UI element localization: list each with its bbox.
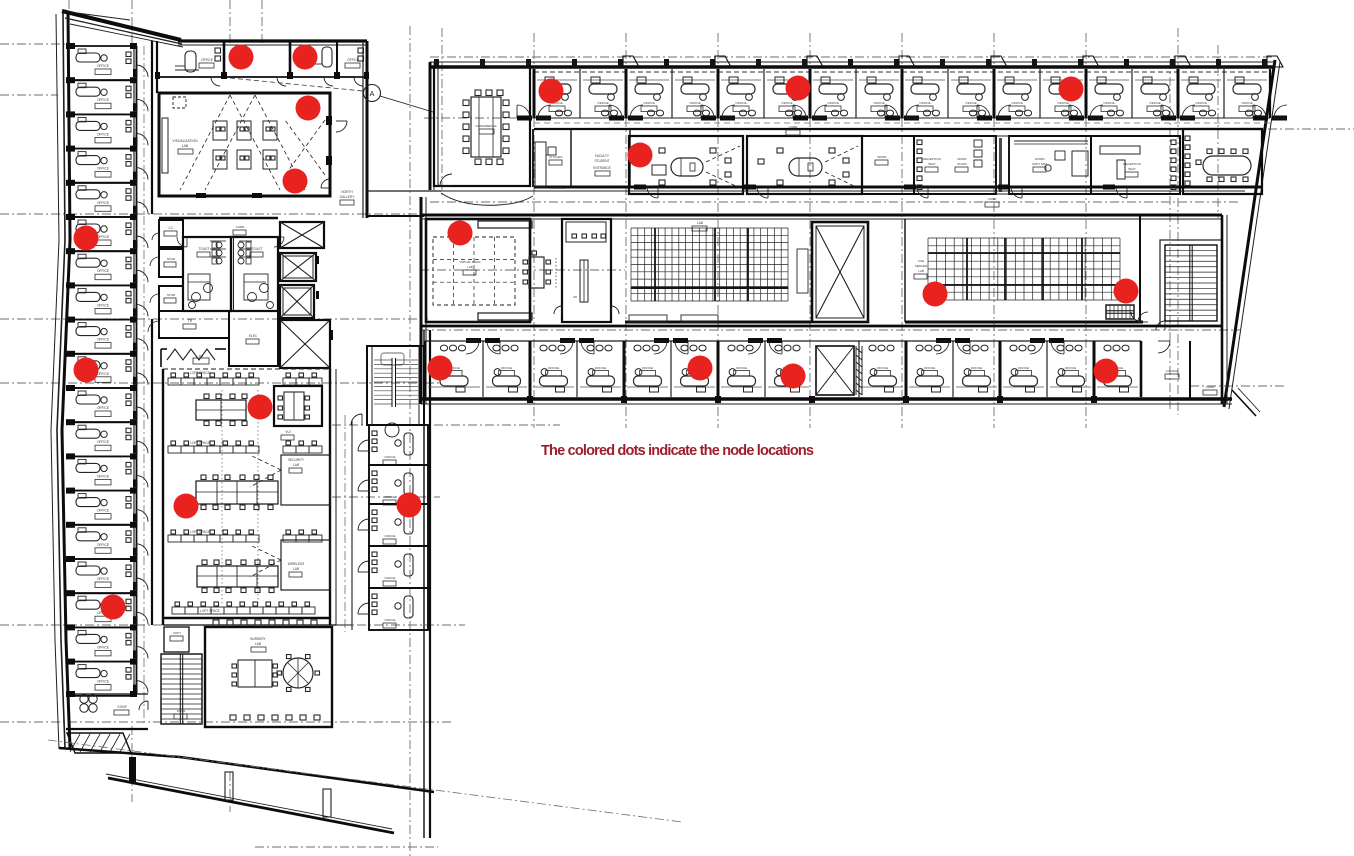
svg-text:OFFICE: OFFICE — [385, 618, 396, 622]
svg-text:SERVER: SERVER — [915, 264, 928, 268]
svg-text:LAB: LAB — [467, 265, 472, 269]
svg-text:VUI: VUI — [285, 430, 290, 434]
svg-text:OFFICE: OFFICE — [97, 645, 110, 649]
svg-text:LOUNGE: LOUNGE — [1166, 369, 1179, 373]
svg-text:OFFICE: OFFICE — [689, 101, 700, 105]
svg-text:TR: TR — [188, 319, 193, 323]
svg-text:OFFICE: OFFICE — [385, 495, 396, 499]
svg-text:LAB: LAB — [918, 269, 924, 273]
svg-text:OFFICE: OFFICE — [548, 366, 559, 370]
svg-text:KITCHEN: KITCHEN — [549, 155, 562, 159]
svg-text:OFFICE: OFFICE — [1195, 101, 1206, 105]
svg-text:ELEC: ELEC — [249, 334, 258, 338]
svg-text:WORK: WORK — [957, 157, 966, 161]
svg-text:OFFICE: OFFICE — [501, 366, 512, 370]
svg-text:FACULTY: FACULTY — [595, 154, 610, 158]
svg-text:OFFICE: OFFICE — [97, 132, 110, 136]
svg-text:OFFICE: OFFICE — [97, 577, 110, 581]
svg-text:LAB: LAB — [293, 567, 299, 571]
svg-text:BURSERY: BURSERY — [250, 637, 266, 641]
svg-text:OFFICE: OFFICE — [201, 58, 213, 62]
svg-text:COPY MAIL: COPY MAIL — [1032, 162, 1049, 166]
svg-text:DN: DN — [199, 354, 203, 358]
svg-text:CSE: CSE — [918, 259, 924, 263]
svg-text:OFFICE: OFFICE — [97, 235, 110, 239]
svg-text:STUDENT: STUDENT — [594, 159, 609, 163]
svg-text:RECEPTION: RECEPTION — [923, 157, 941, 161]
svg-text:OFFICE: OFFICE — [97, 167, 110, 171]
svg-text:OFFICE: OFFICE — [924, 366, 935, 370]
svg-text:OFFICE: OFFICE — [736, 366, 747, 370]
svg-text:TOILET: TOILET — [251, 247, 262, 251]
svg-text:OFFICE: OFFICE — [642, 366, 653, 370]
svg-text:OFFICE: OFFICE — [97, 338, 110, 342]
svg-text:WAIT: WAIT — [928, 162, 936, 166]
svg-text:WORK/: WORK/ — [1035, 157, 1045, 161]
svg-text:OFFICE: OFFICE — [97, 680, 110, 684]
svg-text:The colored dots indicate the: The colored dots indicate the node locat… — [541, 443, 814, 459]
svg-text:LAB: LAB — [697, 221, 703, 225]
svg-text:OFFICE: OFFICE — [1149, 101, 1160, 105]
svg-text:VIRTUAL MEDIA: VIRTUAL MEDIA — [459, 260, 480, 264]
svg-text:LAB: LAB — [182, 144, 189, 148]
svg-text:NORTH: NORTH — [341, 190, 353, 194]
svg-text:TOILET: TOILET — [198, 247, 209, 251]
svg-text:OFFICE: OFFICE — [1011, 101, 1022, 105]
svg-text:LAB: LAB — [293, 463, 299, 467]
svg-text:STORAGE: STORAGE — [551, 186, 565, 190]
svg-text:A: A — [370, 91, 375, 98]
svg-text:STOR: STOR — [167, 293, 176, 297]
svg-text:STOR: STOR — [167, 257, 176, 261]
svg-text:OFFICE: OFFICE — [1018, 366, 1029, 370]
svg-text:OFFICE: OFFICE — [97, 98, 110, 102]
svg-text:ENTRANCE: ENTRANCE — [593, 166, 611, 170]
svg-text:UP: UP — [573, 295, 577, 299]
svg-text:OFFICE: OFFICE — [97, 406, 110, 410]
svg-text:SECURITY: SECURITY — [288, 458, 305, 462]
svg-text:OFFICE: OFFICE — [877, 366, 888, 370]
svg-text:OFFICE: OFFICE — [597, 101, 608, 105]
svg-text:GALLERY: GALLERY — [340, 195, 356, 199]
svg-text:OFFICE: OFFICE — [385, 534, 396, 538]
svg-text:CORR: CORR — [988, 197, 998, 201]
svg-text:OFFICE: OFFICE — [735, 101, 746, 105]
svg-text:WORK: WORK — [877, 155, 886, 159]
svg-text:OFFICE: OFFICE — [97, 303, 110, 307]
svg-text:OFFICE: OFFICE — [385, 455, 396, 459]
svg-text:J.C.: J.C. — [168, 226, 174, 230]
svg-text:OFFICE: OFFICE — [1065, 366, 1076, 370]
svg-text:STAIR: STAIR — [177, 709, 186, 713]
svg-text:OFFICE: OFFICE — [97, 474, 110, 478]
svg-text:ROOM: ROOM — [957, 162, 967, 166]
svg-text:LOFT SPACE: LOFT SPACE — [190, 530, 210, 534]
svg-text:LAB: LAB — [255, 642, 261, 646]
svg-text:OFFICE: OFFICE — [97, 269, 110, 273]
svg-text:OFFICE: OFFICE — [1057, 101, 1068, 105]
svg-text:CONFERENCE: CONFERENCE — [475, 124, 496, 128]
svg-text:WIRELESS: WIRELESS — [288, 562, 304, 566]
svg-text:OFFICE: OFFICE — [827, 101, 838, 105]
svg-text:OFFICE: OFFICE — [919, 101, 930, 105]
svg-text:OFFICE: OFFICE — [97, 201, 110, 205]
svg-text:CONF: CONF — [117, 705, 127, 709]
svg-text:OFFICE: OFFICE — [97, 543, 110, 547]
svg-text:OFFICE: OFFICE — [385, 576, 396, 580]
svg-text:OFFICE: OFFICE — [595, 366, 606, 370]
svg-text:OFFICE: OFFICE — [97, 64, 110, 68]
svg-text:COPY: COPY — [173, 631, 182, 635]
svg-text:OFFICE: OFFICE — [643, 101, 654, 105]
svg-text:OFFICE: OFFICE — [97, 509, 110, 513]
svg-text:OFFICE: OFFICE — [347, 58, 359, 62]
svg-text:OFFICE: OFFICE — [965, 101, 976, 105]
svg-text:LOFT SPACE: LOFT SPACE — [200, 609, 220, 613]
svg-text:VISUALIZATION: VISUALIZATION — [172, 139, 198, 143]
svg-text:CORR: CORR — [1206, 385, 1216, 389]
svg-text:OFFICE: OFFICE — [781, 101, 792, 105]
svg-text:OFFICE: OFFICE — [1103, 101, 1114, 105]
svg-text:OFFICE: OFFICE — [873, 101, 884, 105]
svg-text:CORR: CORR — [236, 225, 246, 229]
svg-text:RECEPTION: RECEPTION — [1123, 162, 1141, 166]
svg-text:WAIT: WAIT — [1128, 167, 1136, 171]
svg-text:OFFICE: OFFICE — [97, 440, 110, 444]
svg-text:OFFICE: OFFICE — [971, 366, 982, 370]
svg-text:LOFT SPACE: LOFT SPACE — [190, 441, 210, 445]
svg-text:OFFICE: OFFICE — [1241, 101, 1252, 105]
svg-text:CORR: CORR — [789, 125, 799, 129]
svg-text:OFFICE: OFFICE — [97, 372, 110, 376]
